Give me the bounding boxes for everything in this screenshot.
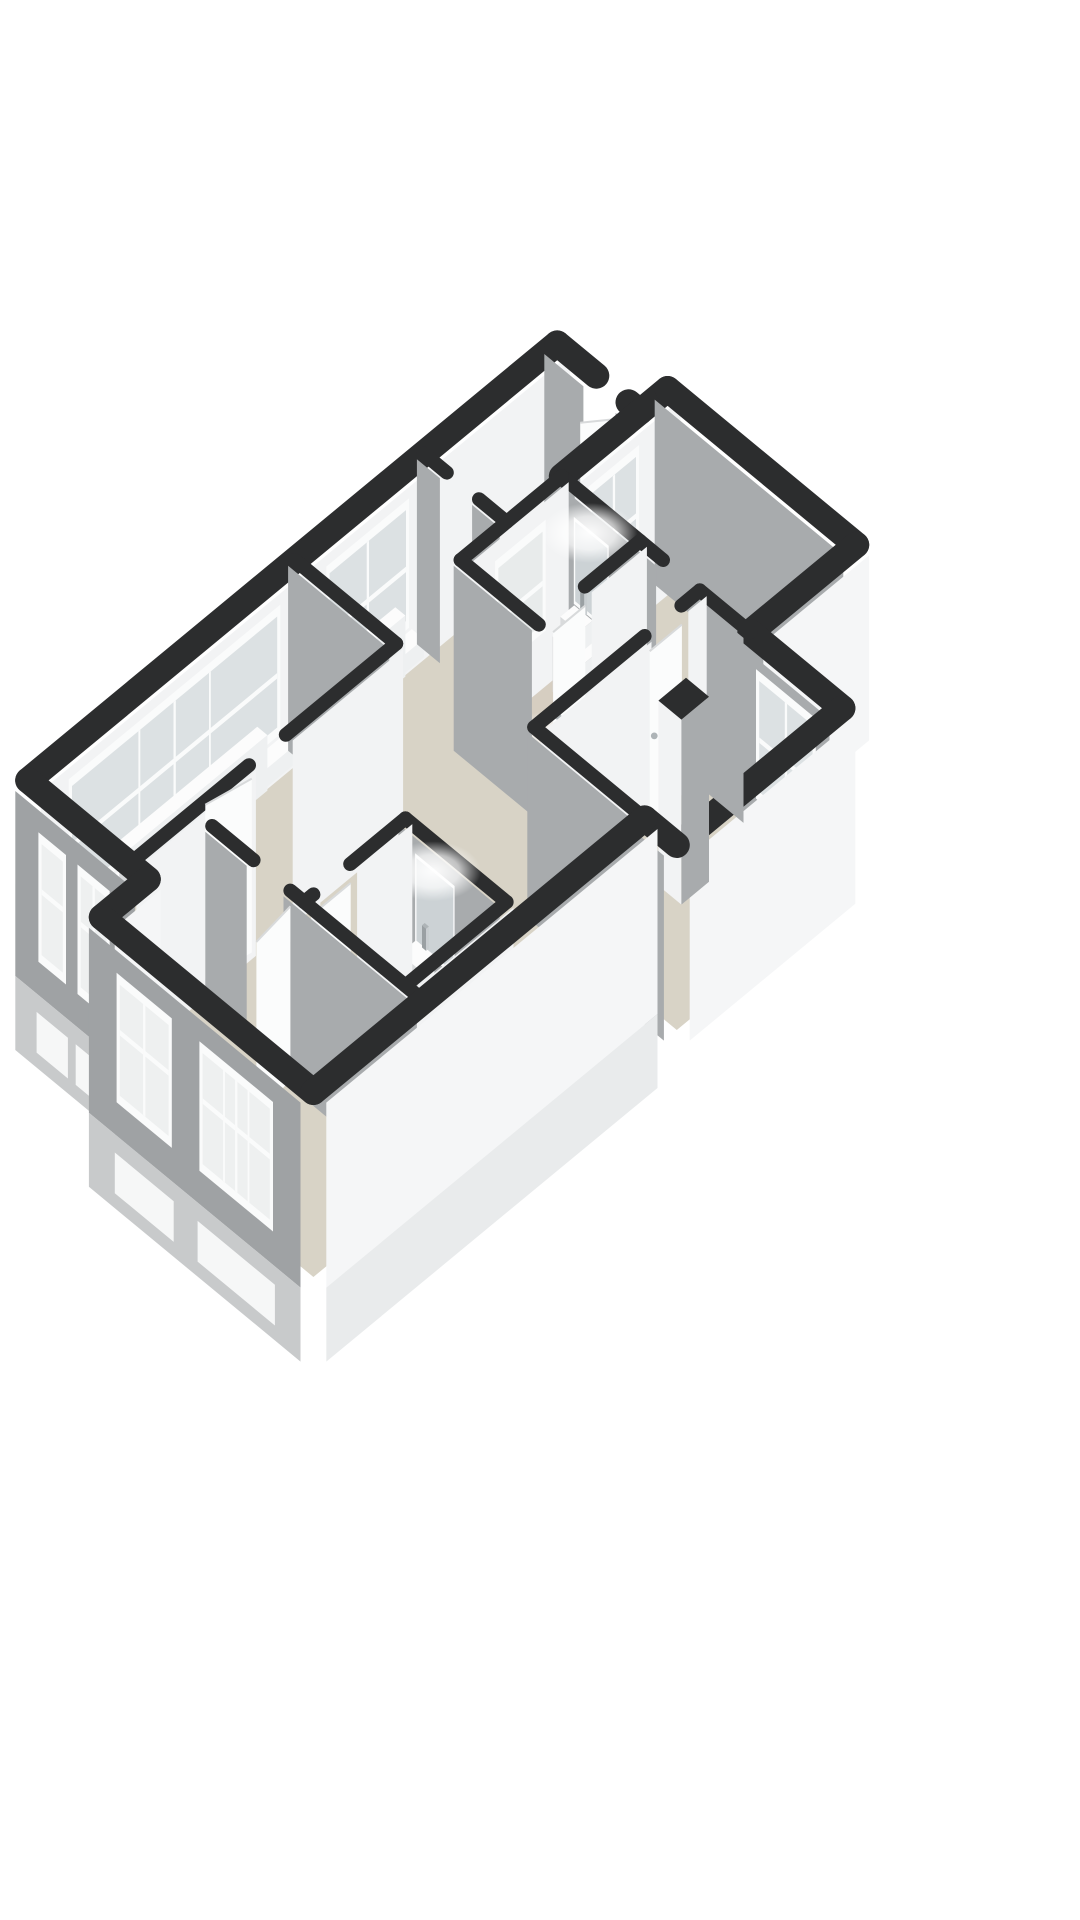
wall-hall-lbed-a-face [417,459,440,663]
floorplan-screenshot [0,0,1080,1920]
bedroom-mr-door-leaf-handle [651,732,658,739]
bedroom-mr-column-side [681,697,709,905]
bathroom-bottom-faucet-left-front [422,925,426,951]
bathroom-bottom-faucet-left-side [426,927,429,951]
wall-bedroom-bottom-sw-window-divider [235,1080,237,1193]
wall-bedroom-bottom-sw-window-divider [143,1004,145,1117]
floorplan-3d-render [0,0,1080,1920]
floorplan-viewport[interactable] [0,0,1080,1920]
wall-bedroom-bottom-sw-window-divider [248,1090,250,1203]
wall-bedroom-bottom-sw-window-divider [223,1070,225,1183]
